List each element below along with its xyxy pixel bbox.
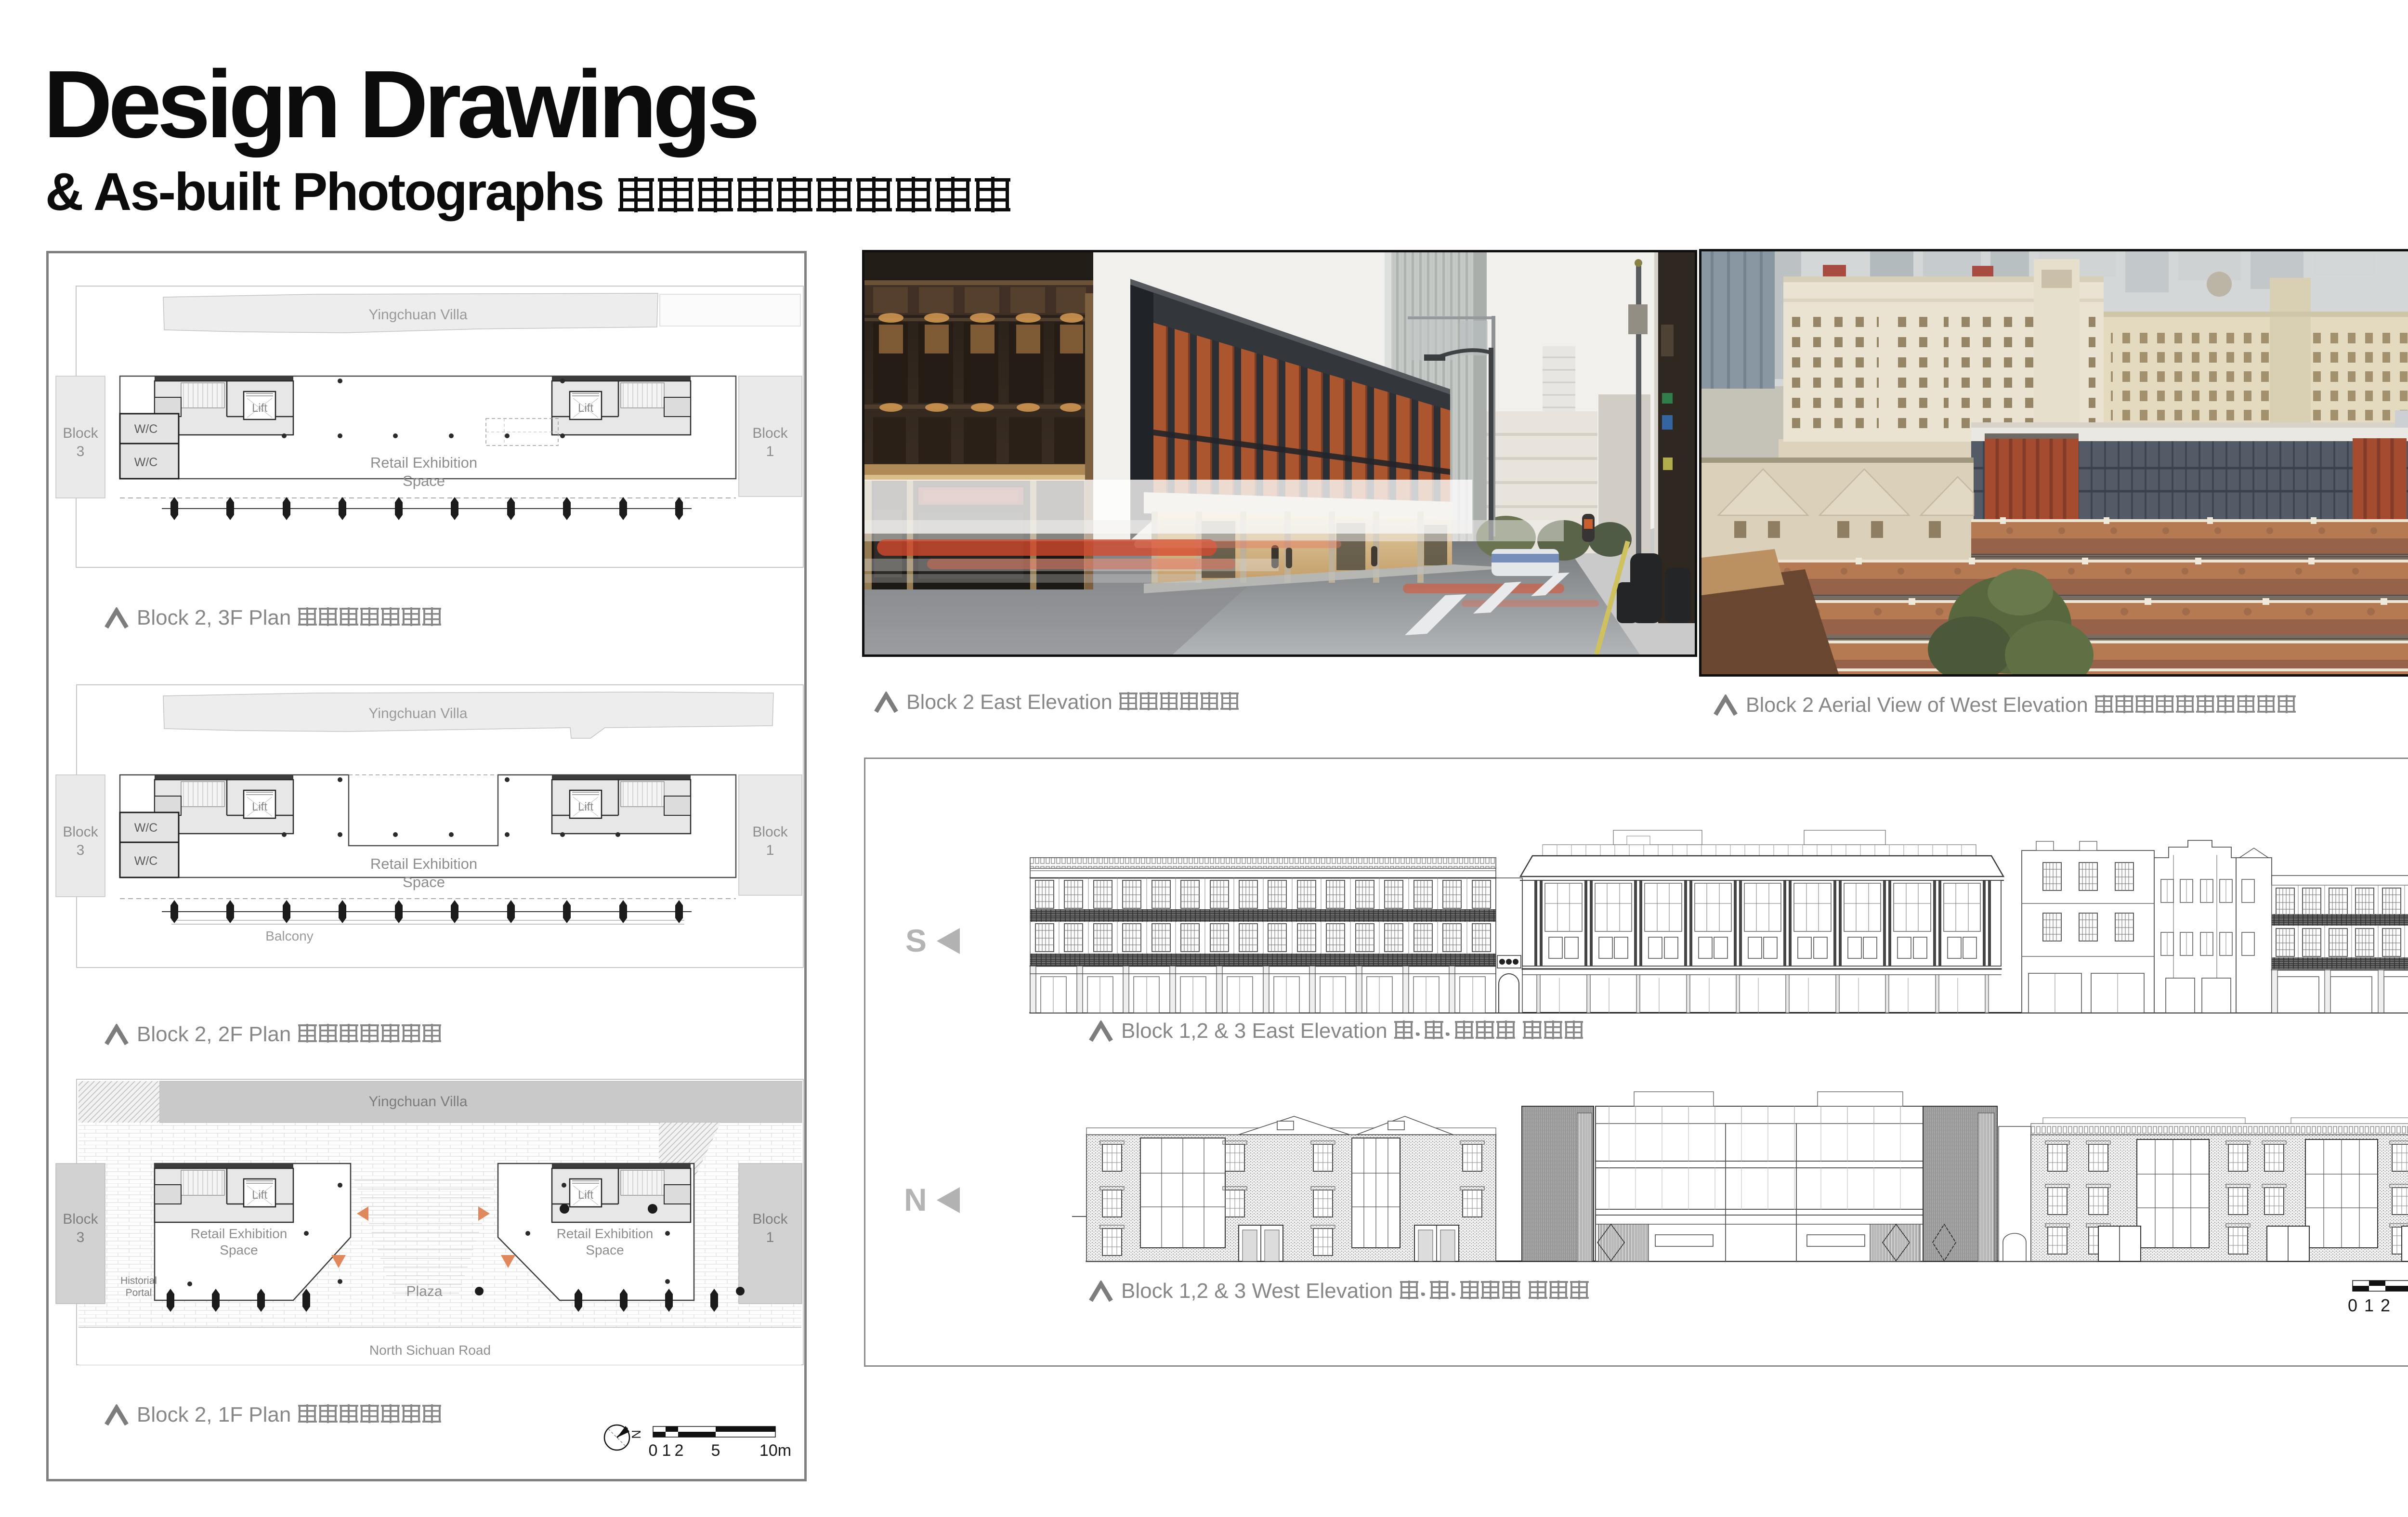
svg-text:2: 2 — [675, 1441, 684, 1460]
svg-text:3: 3 — [77, 444, 85, 459]
svg-text:0: 0 — [649, 1441, 658, 1460]
svg-text:Space: Space — [403, 472, 445, 489]
svg-text:North Sichuan Road: North Sichuan Road — [369, 1343, 491, 1358]
svg-text:1: 1 — [766, 1229, 774, 1245]
svg-text:10m: 10m — [759, 1441, 791, 1460]
svg-text:Block: Block — [63, 1211, 98, 1227]
svg-text:Space: Space — [403, 874, 445, 890]
svg-text:Retail Exhibition: Retail Exhibition — [557, 1226, 654, 1241]
svg-text:3: 3 — [77, 1229, 85, 1245]
svg-text:Retail Exhibition: Retail Exhibition — [370, 454, 477, 471]
svg-text:Block: Block — [63, 425, 98, 441]
svg-text:Yingchuan Villa: Yingchuan Villa — [368, 1094, 467, 1110]
svg-text:Block: Block — [752, 425, 788, 441]
svg-text:N: N — [629, 1430, 643, 1439]
svg-text:1: 1 — [766, 444, 774, 459]
svg-text:Block: Block — [63, 824, 98, 840]
svg-text:Block: Block — [752, 1211, 788, 1227]
svg-text:Lift: Lift — [578, 402, 593, 415]
svg-text:Lift: Lift — [252, 800, 267, 813]
svg-text:Space: Space — [220, 1242, 258, 1257]
svg-text:Retail Exhibition: Retail Exhibition — [191, 1226, 288, 1241]
svg-text:W/C: W/C — [134, 456, 158, 469]
svg-text:Lift: Lift — [578, 1189, 593, 1202]
svg-text:W/C: W/C — [134, 821, 158, 835]
svg-text:W/C: W/C — [134, 422, 158, 436]
svg-text:W/C: W/C — [134, 854, 158, 868]
svg-text:Balcony: Balcony — [265, 929, 314, 943]
svg-text:1: 1 — [2364, 1295, 2374, 1315]
svg-text:Portal: Portal — [126, 1287, 152, 1298]
svg-text:2: 2 — [2381, 1295, 2390, 1315]
svg-text:0: 0 — [2348, 1295, 2357, 1315]
svg-text:N: N — [904, 1182, 927, 1217]
svg-text:Retail Exhibition: Retail Exhibition — [370, 855, 477, 872]
svg-text:Lift: Lift — [252, 402, 267, 415]
svg-text:Yingchuan Villa: Yingchuan Villa — [368, 307, 467, 323]
svg-text:Block: Block — [752, 824, 788, 840]
svg-text:Lift: Lift — [578, 800, 593, 813]
svg-text:Historial: Historial — [120, 1275, 157, 1286]
svg-text:1: 1 — [662, 1441, 671, 1460]
svg-text:Plaza: Plaza — [406, 1283, 442, 1299]
svg-text:5: 5 — [711, 1441, 720, 1460]
svg-text:3: 3 — [77, 842, 85, 858]
svg-text:1: 1 — [766, 842, 774, 858]
svg-text:S: S — [905, 923, 927, 958]
svg-text:Lift: Lift — [252, 1189, 267, 1202]
svg-text:Space: Space — [586, 1242, 624, 1257]
svg-text:Yingchuan Villa: Yingchuan Villa — [368, 706, 467, 721]
